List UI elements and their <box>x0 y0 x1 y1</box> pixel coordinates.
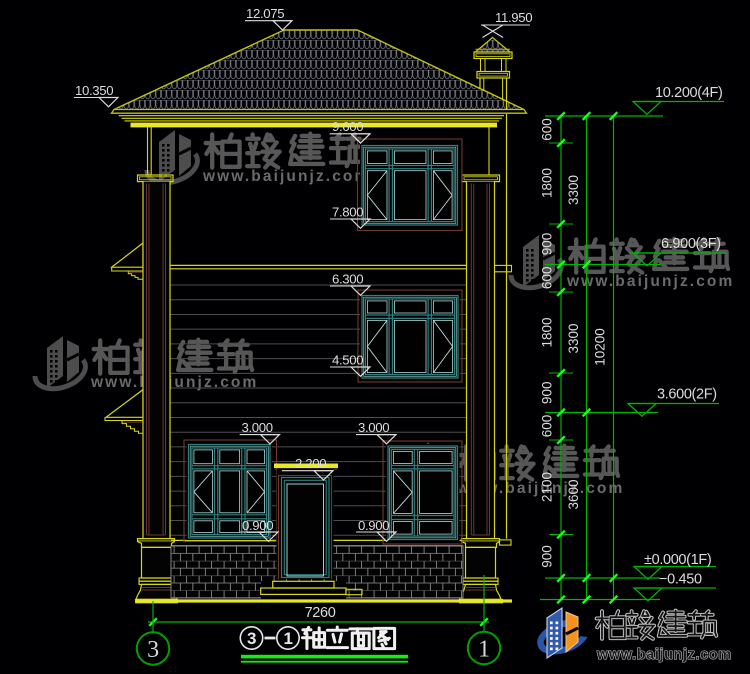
svg-text:10.200(4F): 10.200(4F) <box>655 85 722 101</box>
svg-text:3: 3 <box>247 629 256 648</box>
svg-text:900: 900 <box>540 545 555 568</box>
svg-text:0.900: 0.900 <box>358 518 389 533</box>
svg-text:3600: 3600 <box>566 479 581 509</box>
svg-text:600: 600 <box>540 118 555 141</box>
svg-text:11.950: 11.950 <box>495 10 532 25</box>
svg-text:9.600: 9.600 <box>332 119 363 134</box>
svg-text:7.800: 7.800 <box>332 205 363 220</box>
svg-text:2.200: 2.200 <box>295 456 326 471</box>
svg-text:2100: 2100 <box>540 472 555 502</box>
svg-text:1800: 1800 <box>540 168 555 198</box>
svg-text:1: 1 <box>283 629 292 648</box>
svg-text:12.075: 12.075 <box>246 6 284 21</box>
svg-text:4.500: 4.500 <box>332 353 363 368</box>
svg-text:3.000: 3.000 <box>242 420 273 435</box>
svg-text:3300: 3300 <box>566 175 581 205</box>
svg-text:3.600(2F): 3.600(2F) <box>657 387 717 403</box>
svg-text:0.900: 0.900 <box>242 518 273 533</box>
svg-text:600: 600 <box>540 415 555 438</box>
svg-text:3: 3 <box>147 637 159 663</box>
svg-text:6.900(3F): 6.900(3F) <box>661 236 721 252</box>
svg-text:www.baijunjz.com: www.baijunjz.com <box>596 647 732 663</box>
svg-text:3.000: 3.000 <box>358 420 389 435</box>
svg-text:1800: 1800 <box>540 317 555 347</box>
svg-text:1: 1 <box>478 637 490 663</box>
svg-text:3300: 3300 <box>566 323 581 353</box>
svg-text:600: 600 <box>540 267 555 290</box>
svg-text:−0.450: −0.450 <box>659 572 702 588</box>
svg-text:±0.000(1F): ±0.000(1F) <box>644 552 711 568</box>
svg-text:10200: 10200 <box>593 328 608 366</box>
svg-text:www.baijunjz.com: www.baijunjz.com <box>202 168 370 185</box>
svg-text:www.baijunjz.com: www.baijunjz.com <box>566 273 734 290</box>
svg-text:6.300: 6.300 <box>332 272 363 287</box>
svg-text:7260: 7260 <box>305 605 336 621</box>
svg-text:900: 900 <box>540 382 555 405</box>
svg-text:900: 900 <box>540 233 555 256</box>
svg-text:10.350: 10.350 <box>75 83 113 98</box>
